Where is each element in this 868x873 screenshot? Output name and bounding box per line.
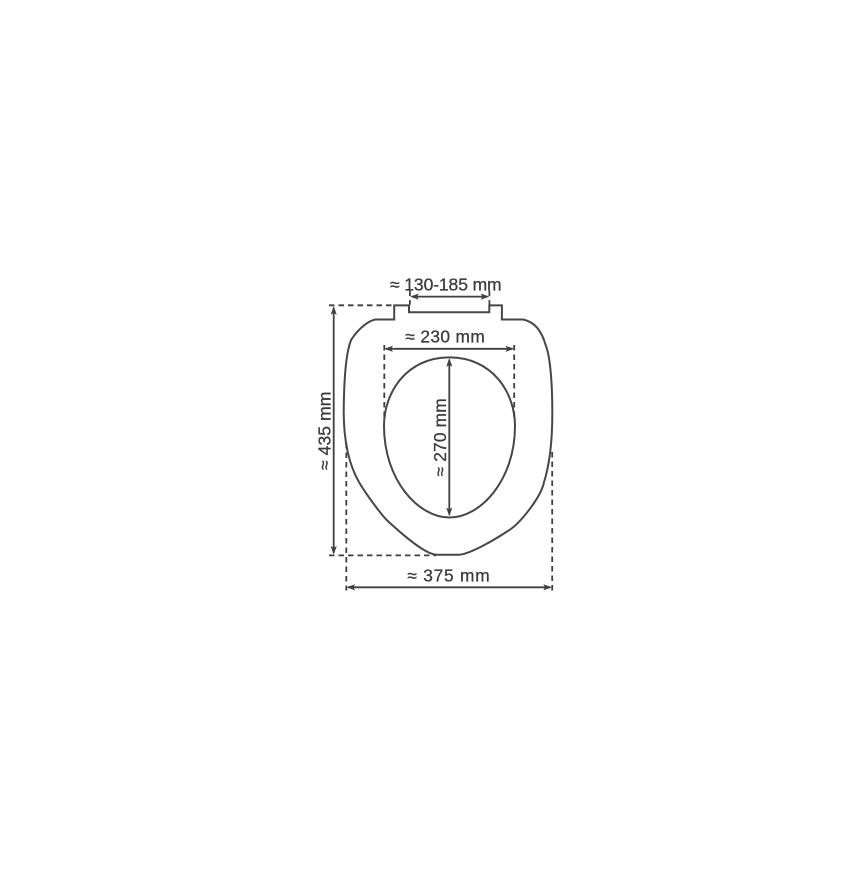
svg-text:≈ 435 mm: ≈ 435 mm [314, 392, 334, 470]
svg-text:≈ 375 mm: ≈ 375 mm [407, 565, 490, 585]
svg-text:≈ 270 mm: ≈ 270 mm [430, 398, 450, 476]
svg-text:≈ 230 mm: ≈ 230 mm [405, 326, 485, 346]
svg-text:≈ 130-185 mm: ≈ 130-185 mm [390, 274, 502, 294]
